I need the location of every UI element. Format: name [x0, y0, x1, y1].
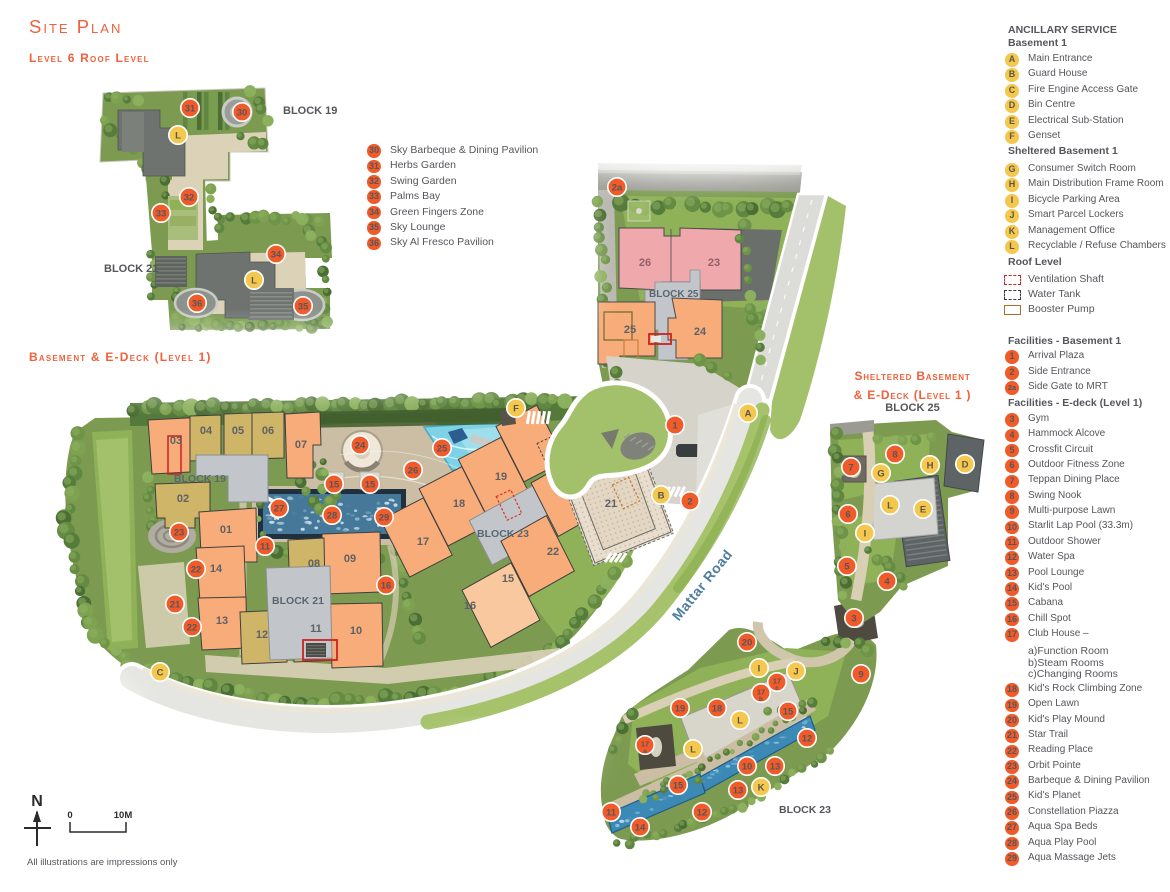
svg-text:2a: 2a [612, 182, 623, 193]
svg-text:I: I [758, 663, 761, 674]
svg-text:12: 12 [256, 629, 268, 641]
svg-text:3: 3 [851, 613, 856, 624]
svg-text:BLOCK 19: BLOCK 19 [283, 105, 337, 117]
svg-text:25: 25 [624, 324, 636, 336]
svg-text:21: 21 [605, 498, 617, 510]
svg-text:15: 15 [673, 780, 684, 791]
svg-text:A: A [745, 408, 752, 419]
svg-text:J: J [793, 666, 798, 677]
svg-text:04: 04 [200, 425, 213, 437]
svg-text:BLOCK 23: BLOCK 23 [779, 804, 831, 816]
svg-text:22: 22 [191, 564, 202, 575]
svg-text:10M: 10M [114, 810, 133, 821]
svg-text:C: C [157, 667, 164, 678]
svg-text:5: 5 [844, 561, 850, 572]
svg-text:05: 05 [232, 425, 244, 437]
svg-text:0: 0 [67, 810, 72, 821]
svg-text:L: L [175, 130, 181, 141]
svg-text:1: 1 [672, 420, 678, 431]
svg-text:E: E [920, 504, 926, 515]
svg-text:11: 11 [310, 623, 322, 635]
svg-text:01: 01 [220, 524, 232, 536]
svg-text:4: 4 [884, 576, 890, 587]
svg-text:03: 03 [170, 435, 182, 447]
svg-text:23: 23 [174, 527, 185, 538]
svg-text:L: L [887, 500, 893, 511]
svg-text:7: 7 [848, 462, 853, 473]
svg-text:K: K [758, 782, 765, 793]
svg-text:10: 10 [350, 625, 362, 637]
svg-text:17: 17 [417, 536, 429, 548]
svg-text:26: 26 [639, 257, 651, 269]
svg-text:11: 11 [260, 541, 271, 552]
svg-text:25: 25 [437, 443, 448, 454]
svg-text:13: 13 [733, 785, 744, 796]
svg-text:F: F [513, 403, 519, 414]
svg-text:13: 13 [216, 615, 228, 627]
svg-text:18: 18 [453, 498, 465, 510]
svg-text:27: 27 [274, 503, 285, 514]
svg-text:8: 8 [892, 449, 897, 460]
svg-text:b: b [759, 696, 763, 703]
svg-text:22: 22 [547, 546, 559, 558]
svg-text:24: 24 [694, 326, 707, 338]
svg-text:L: L [251, 275, 257, 286]
svg-text:BLOCK 23: BLOCK 23 [477, 528, 529, 540]
svg-text:24: 24 [355, 440, 366, 451]
svg-text:30: 30 [237, 107, 248, 118]
svg-text:16: 16 [381, 580, 392, 591]
svg-text:D: D [962, 459, 969, 470]
svg-text:G: G [877, 468, 884, 479]
svg-text:07: 07 [295, 439, 307, 451]
svg-text:L: L [737, 715, 743, 726]
svg-text:36: 36 [192, 298, 203, 309]
svg-text:31: 31 [185, 103, 196, 114]
svg-text:11: 11 [606, 807, 617, 818]
svg-text:15: 15 [365, 479, 376, 490]
svg-text:15: 15 [783, 706, 794, 717]
svg-text:c: c [775, 685, 779, 692]
svg-text:9: 9 [858, 669, 863, 680]
svg-text:18: 18 [712, 703, 723, 714]
svg-text:BLOCK 19: BLOCK 19 [174, 473, 226, 485]
svg-text:02: 02 [177, 493, 189, 505]
svg-text:13: 13 [770, 761, 781, 772]
svg-text:H: H [927, 460, 934, 471]
svg-text:26: 26 [408, 465, 419, 476]
svg-text:29: 29 [379, 512, 390, 523]
svg-text:12: 12 [802, 733, 813, 744]
svg-text:15: 15 [502, 573, 514, 585]
svg-text:10: 10 [742, 761, 753, 772]
svg-text:BLOCK 21: BLOCK 21 [104, 263, 158, 275]
svg-text:16: 16 [464, 600, 476, 612]
svg-text:14: 14 [635, 822, 646, 833]
svg-text:I: I [864, 528, 867, 539]
svg-text:22: 22 [187, 622, 198, 633]
svg-text:N: N [31, 793, 43, 810]
svg-text:6: 6 [845, 509, 850, 520]
svg-text:19: 19 [675, 703, 686, 714]
svg-text:B: B [658, 490, 665, 501]
svg-text:21: 21 [170, 599, 181, 610]
svg-text:28: 28 [327, 510, 338, 521]
svg-text:23: 23 [708, 257, 720, 269]
svg-text:06: 06 [262, 425, 274, 437]
svg-text:L: L [690, 744, 696, 755]
svg-text:BLOCK 25: BLOCK 25 [649, 289, 699, 300]
svg-text:a: a [643, 748, 647, 755]
svg-text:12: 12 [697, 807, 708, 818]
svg-text:2: 2 [687, 496, 692, 507]
svg-text:34: 34 [271, 249, 282, 260]
svg-text:33: 33 [156, 208, 167, 219]
svg-text:09: 09 [344, 553, 356, 565]
svg-text:14: 14 [210, 563, 223, 575]
svg-text:20: 20 [742, 637, 753, 648]
svg-text:32: 32 [184, 192, 195, 203]
svg-text:15: 15 [329, 479, 340, 490]
svg-text:35: 35 [298, 301, 309, 312]
svg-text:08: 08 [308, 558, 320, 570]
svg-text:19: 19 [495, 471, 507, 483]
svg-text:BLOCK 21: BLOCK 21 [272, 595, 324, 607]
